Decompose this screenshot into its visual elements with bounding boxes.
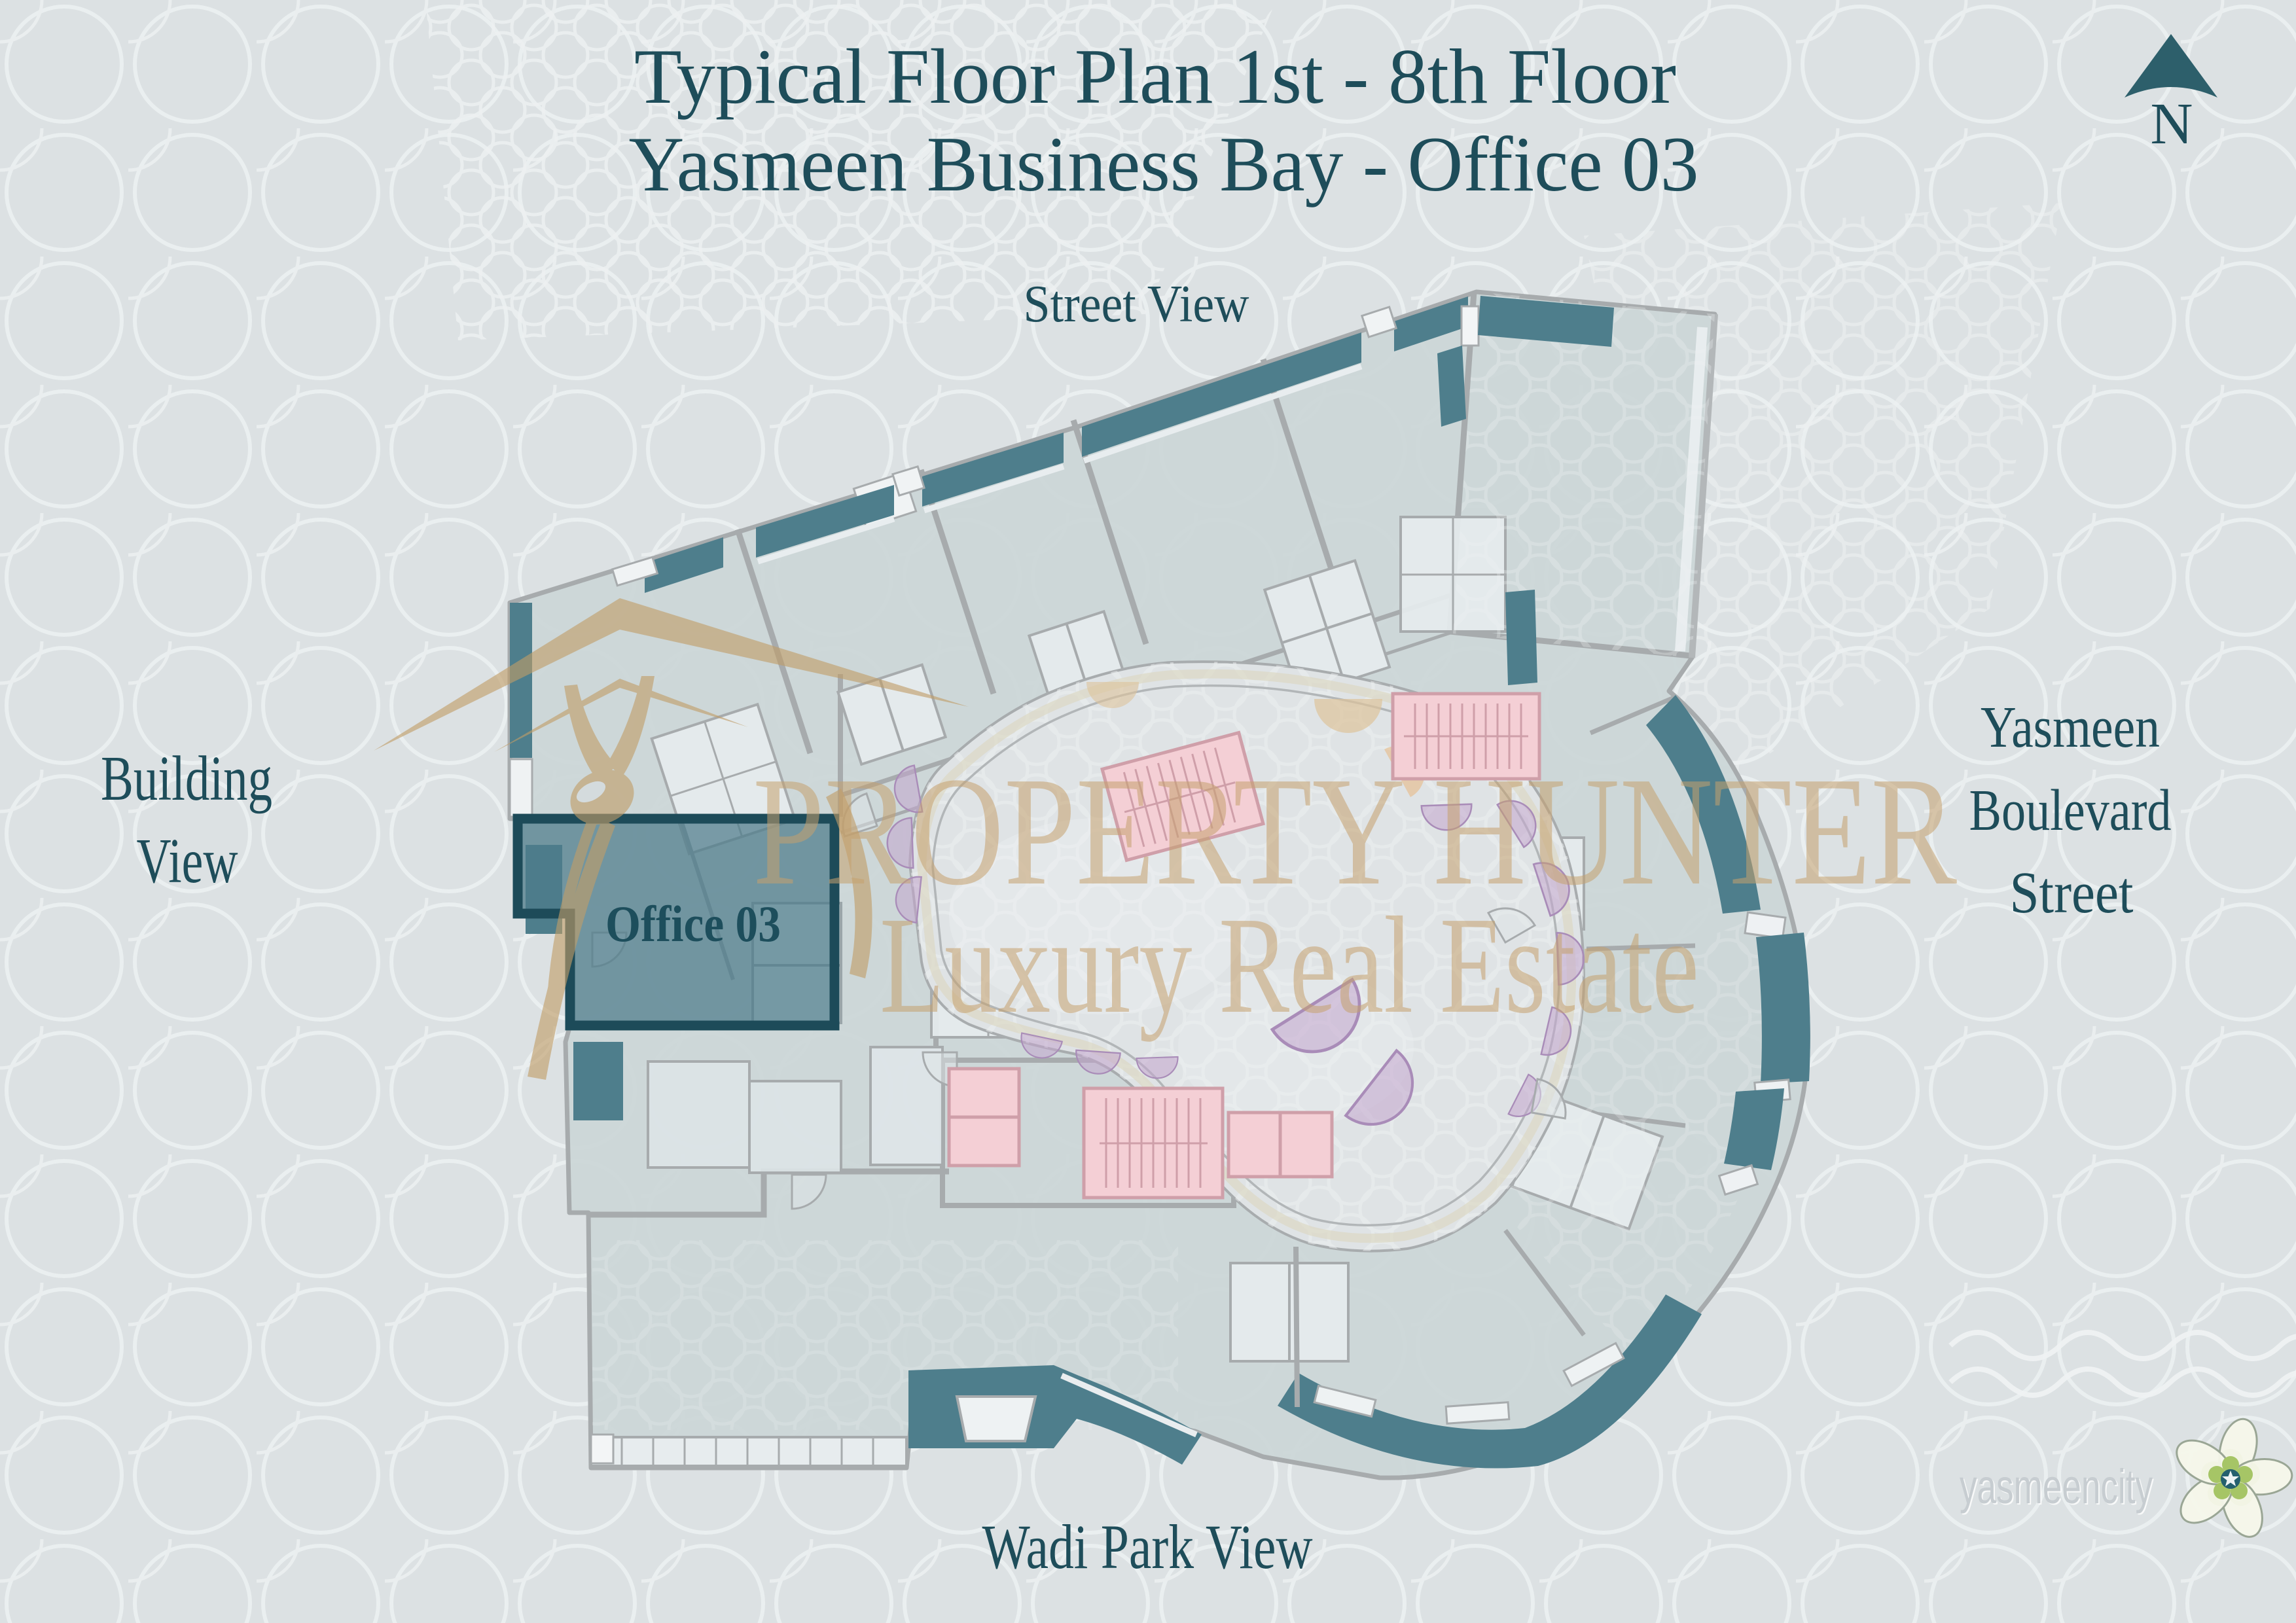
svg-text:Boulevard: Boulevard bbox=[1969, 778, 2172, 843]
svg-text:Typical Floor Plan 1st - 8th F: Typical Floor Plan 1st - 8th Floor bbox=[634, 33, 1676, 120]
svg-text:Wadi Park View: Wadi Park View bbox=[982, 1512, 1313, 1582]
svg-text:Building: Building bbox=[101, 743, 272, 814]
svg-text:Street: Street bbox=[2010, 861, 2134, 925]
svg-text:Yasmeen: Yasmeen bbox=[1981, 695, 2160, 760]
svg-text:yasmeencity: yasmeencity bbox=[1960, 1459, 2153, 1514]
svg-text:View: View bbox=[137, 826, 238, 897]
svg-text:Street View: Street View bbox=[1024, 276, 1249, 333]
svg-text:N: N bbox=[2151, 92, 2193, 156]
svg-text:Yasmeen Business Bay - Office: Yasmeen Business Bay - Office 03 bbox=[629, 120, 1699, 207]
svg-text:Luxury Real Estate: Luxury Real Estate bbox=[880, 888, 1699, 1042]
